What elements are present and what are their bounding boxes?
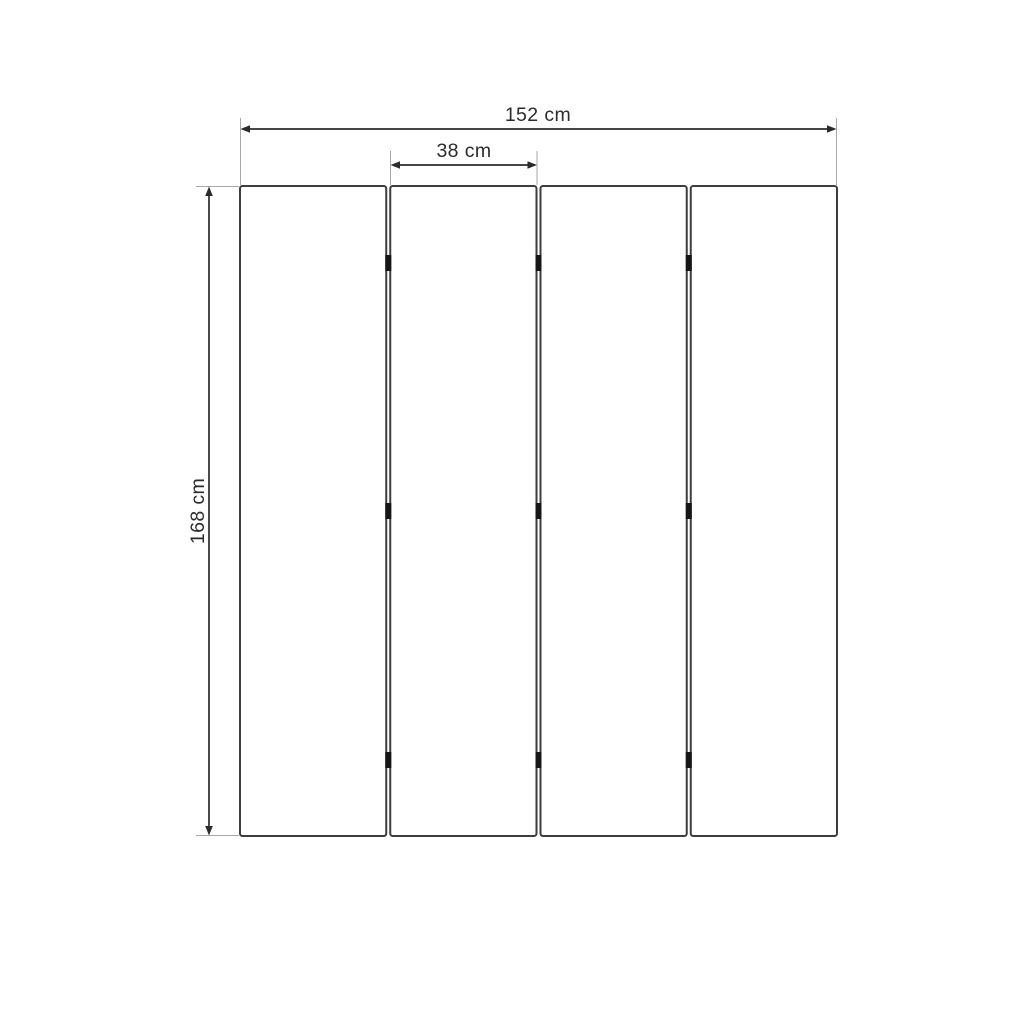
hinge-icon [385, 752, 391, 768]
arrow-left-icon [391, 161, 401, 169]
arrow-left-icon [241, 125, 251, 133]
hinge-icon [536, 503, 542, 519]
hinge-icon [686, 752, 692, 768]
hinge-icon [385, 255, 391, 271]
dimension-drawing: 152 cm 38 cm 168 cm [0, 0, 1024, 1024]
panel-1 [240, 186, 386, 836]
height-label: 168 cm [187, 478, 209, 544]
panel-2 [390, 186, 536, 836]
arrow-up-icon [205, 187, 213, 197]
arrow-right-icon [528, 161, 538, 169]
dimension-panel-width: 38 cm [391, 140, 538, 169]
hinge-icon [686, 255, 692, 271]
dimension-height: 168 cm [187, 187, 213, 836]
four-panel-screen-diagram: 152 cm 38 cm 168 cm [0, 0, 1024, 1024]
hinge-icon [536, 255, 542, 271]
arrow-down-icon [205, 826, 213, 836]
hinge-icon [536, 752, 542, 768]
arrow-right-icon [827, 125, 837, 133]
dimension-total-width: 152 cm [241, 104, 837, 133]
panel-3 [541, 186, 687, 836]
total-width-label: 152 cm [505, 104, 571, 126]
panel-4 [691, 186, 837, 836]
hinge-icon [686, 503, 692, 519]
hinge-icon [385, 503, 391, 519]
panel-width-label: 38 cm [436, 140, 491, 162]
